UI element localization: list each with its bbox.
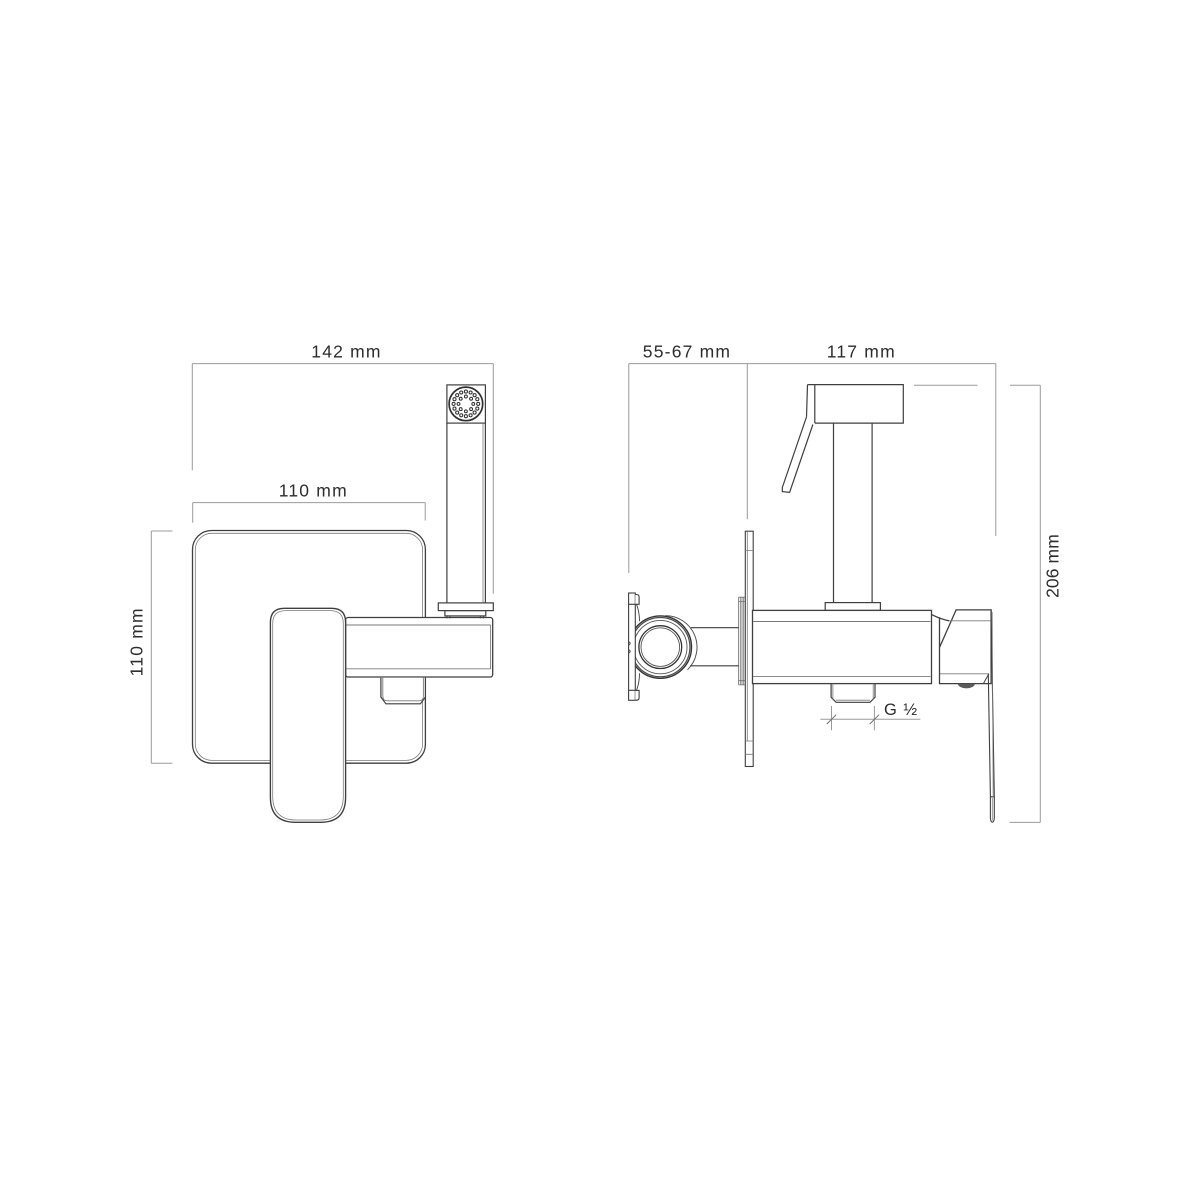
svg-text:110 mm: 110 mm bbox=[279, 481, 348, 501]
svg-text:206 mm: 206 mm bbox=[1043, 534, 1063, 598]
svg-text:110 mm: 110 mm bbox=[127, 607, 147, 676]
svg-text:G ½: G ½ bbox=[884, 701, 918, 719]
svg-text:117 mm: 117 mm bbox=[827, 342, 896, 362]
svg-text:142 mm: 142 mm bbox=[311, 342, 381, 362]
svg-text:55-67 mm: 55-67 mm bbox=[643, 342, 731, 362]
